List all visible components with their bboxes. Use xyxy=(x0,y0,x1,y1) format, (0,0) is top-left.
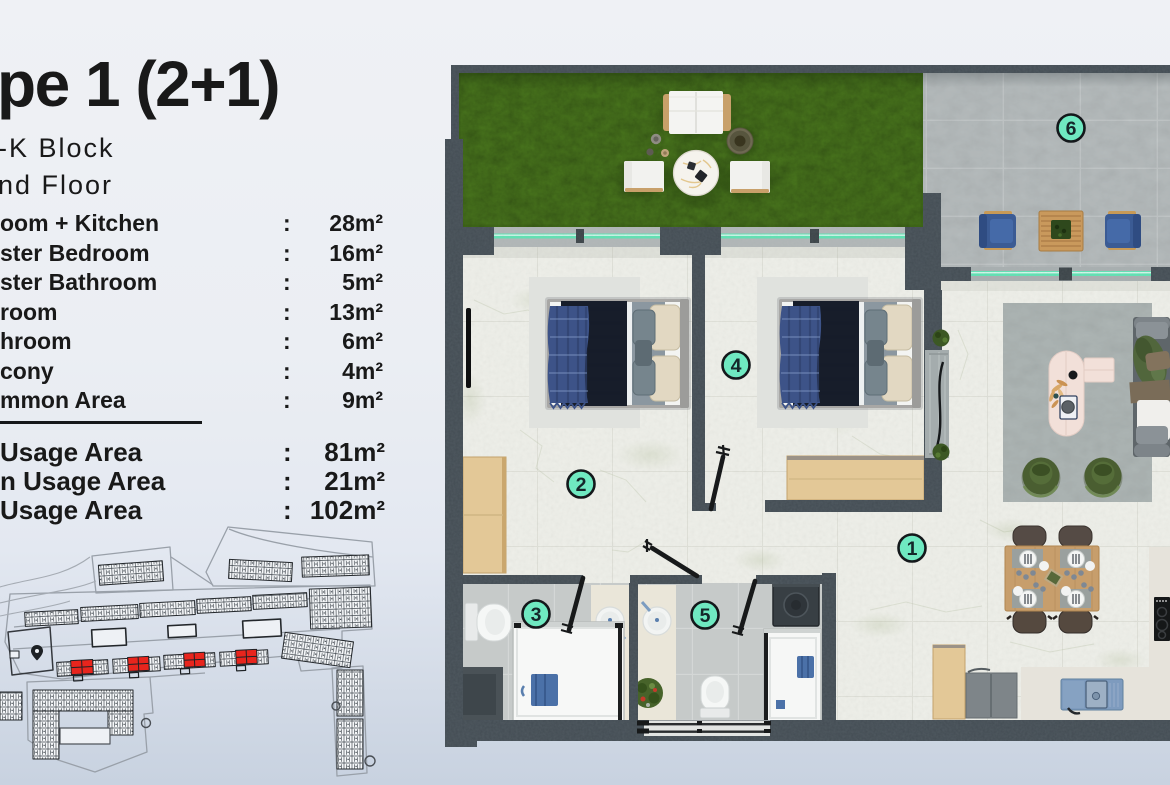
svg-text:5: 5 xyxy=(700,605,711,627)
svg-text:2: 2 xyxy=(576,474,587,496)
svg-text:4: 4 xyxy=(731,355,742,377)
svg-text:1: 1 xyxy=(907,538,918,560)
svg-text:3: 3 xyxy=(531,604,542,626)
svg-text:6: 6 xyxy=(1066,118,1077,140)
